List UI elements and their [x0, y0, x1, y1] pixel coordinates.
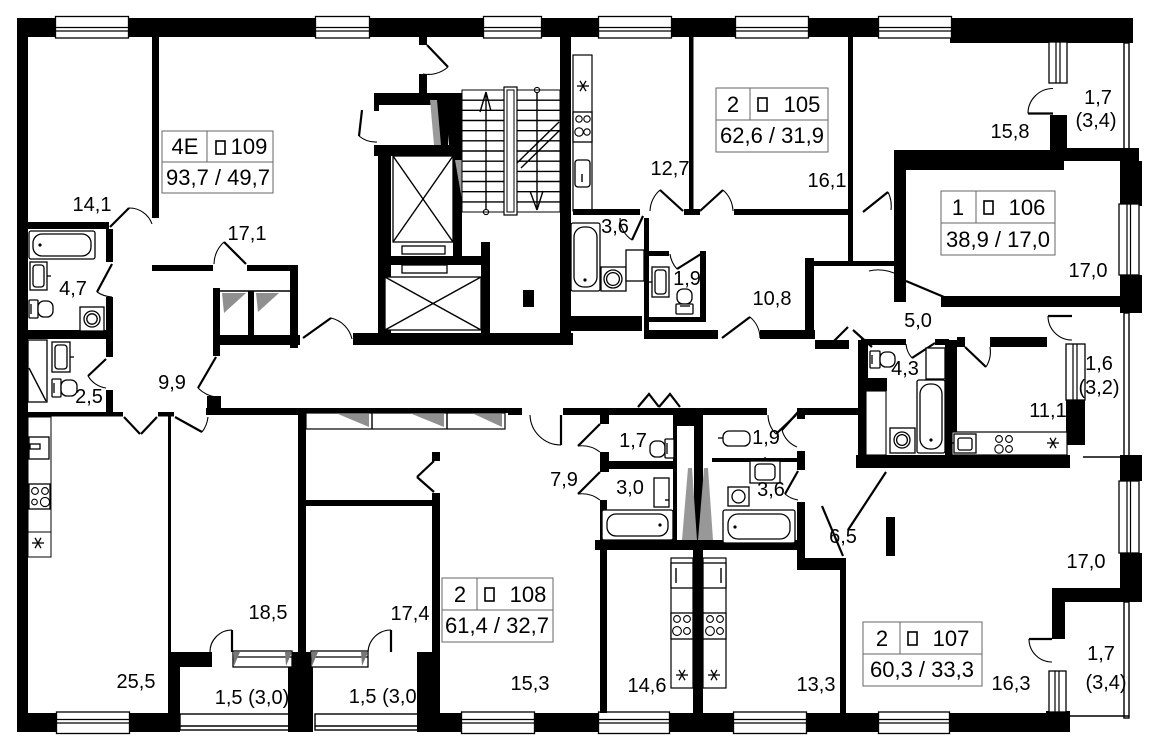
- svg-text:1,7: 1,7: [1087, 643, 1115, 665]
- svg-text:3,6: 3,6: [601, 216, 629, 238]
- svg-text:2: 2: [876, 626, 888, 651]
- svg-text:2: 2: [727, 92, 739, 117]
- svg-text:15,3: 15,3: [511, 673, 550, 695]
- svg-text:17,1: 17,1: [228, 223, 267, 245]
- svg-text:16,3: 16,3: [992, 673, 1031, 695]
- svg-text:4Е: 4Е: [172, 134, 199, 159]
- svg-text:4,3: 4,3: [891, 358, 919, 380]
- svg-text:108: 108: [510, 582, 547, 607]
- svg-text:7,9: 7,9: [550, 469, 578, 491]
- svg-text:16,1: 16,1: [808, 170, 847, 192]
- svg-text:11,1: 11,1: [1029, 400, 1066, 422]
- svg-text:4,7: 4,7: [59, 278, 87, 300]
- svg-text:62,6 / 31,9: 62,6 / 31,9: [720, 123, 824, 148]
- svg-text:1,9: 1,9: [673, 268, 701, 290]
- svg-text:17,4: 17,4: [391, 603, 430, 625]
- svg-text:17,0: 17,0: [1069, 260, 1108, 282]
- svg-text:17,0: 17,0: [1067, 551, 1106, 573]
- svg-text:(3,2): (3,2): [1078, 377, 1119, 399]
- svg-text:3,0: 3,0: [616, 477, 644, 499]
- svg-text:61,4 / 32,7: 61,4 / 32,7: [445, 613, 549, 638]
- svg-text:13,3: 13,3: [797, 674, 836, 696]
- svg-text:105: 105: [784, 92, 821, 117]
- svg-text:38,9 / 17,0: 38,9 / 17,0: [946, 227, 1050, 252]
- svg-text:25,5: 25,5: [117, 671, 156, 693]
- svg-text:10,8: 10,8: [753, 288, 792, 310]
- svg-text:14,1: 14,1: [73, 194, 112, 216]
- svg-text:106: 106: [1009, 195, 1046, 220]
- svg-text:6,5: 6,5: [829, 526, 857, 548]
- svg-text:1: 1: [952, 195, 964, 220]
- svg-text:60,3 / 33,3: 60,3 / 33,3: [870, 657, 974, 682]
- svg-text:107: 107: [933, 626, 970, 651]
- svg-text:2,5: 2,5: [75, 386, 103, 408]
- svg-text:1,9: 1,9: [752, 427, 780, 449]
- svg-text:14,6: 14,6: [628, 675, 667, 697]
- svg-text:1,6: 1,6: [1085, 353, 1113, 375]
- svg-text:93,7 / 49,7: 93,7 / 49,7: [166, 165, 270, 190]
- svg-text:(3,4): (3,4): [1075, 110, 1116, 132]
- svg-text:3,6: 3,6: [757, 479, 785, 501]
- svg-text:18,5: 18,5: [249, 602, 288, 624]
- svg-text:12,7: 12,7: [651, 158, 690, 180]
- svg-text:2: 2: [454, 582, 466, 607]
- svg-text:(3,4): (3,4): [1085, 672, 1126, 694]
- svg-text:5,0: 5,0: [904, 310, 932, 332]
- svg-text:1,5 (3,0): 1,5 (3,0): [349, 686, 423, 708]
- svg-text:15,8: 15,8: [991, 121, 1030, 143]
- svg-text:9,9: 9,9: [158, 372, 186, 394]
- svg-text:109: 109: [231, 134, 268, 159]
- svg-text:1,7: 1,7: [619, 430, 647, 452]
- svg-text:1,5 (3,0): 1,5 (3,0): [215, 687, 289, 709]
- svg-text:1,7: 1,7: [1084, 87, 1112, 109]
